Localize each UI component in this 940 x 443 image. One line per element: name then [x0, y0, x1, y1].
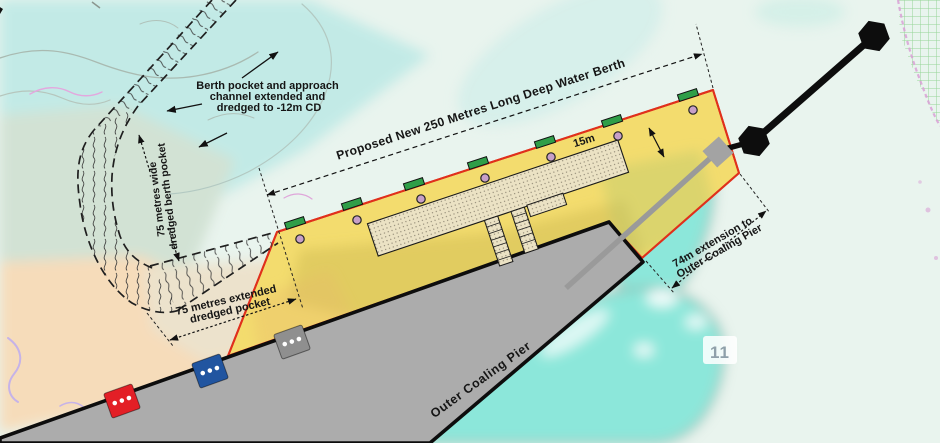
depth-sounding: 11: [703, 336, 737, 364]
magenta-mark: [918, 180, 922, 184]
berth-extension-plan: 11 Outer Coaling Pier: [0, 0, 940, 443]
bollard: [481, 174, 489, 182]
magenta-mark: [926, 208, 931, 213]
bollard: [417, 195, 425, 203]
white-shoal-3: [685, 315, 707, 329]
white-shoal-4: [634, 343, 654, 357]
depth-sounding-value: 11: [710, 343, 730, 362]
bollard: [614, 132, 622, 140]
bollard: [353, 216, 361, 224]
bollard: [547, 153, 555, 161]
bollard: [689, 106, 697, 114]
bollard: [296, 235, 304, 243]
magenta-mark: [934, 256, 938, 260]
berth-pocket-note: Berth pocket and approach channel extend…: [196, 80, 341, 114]
